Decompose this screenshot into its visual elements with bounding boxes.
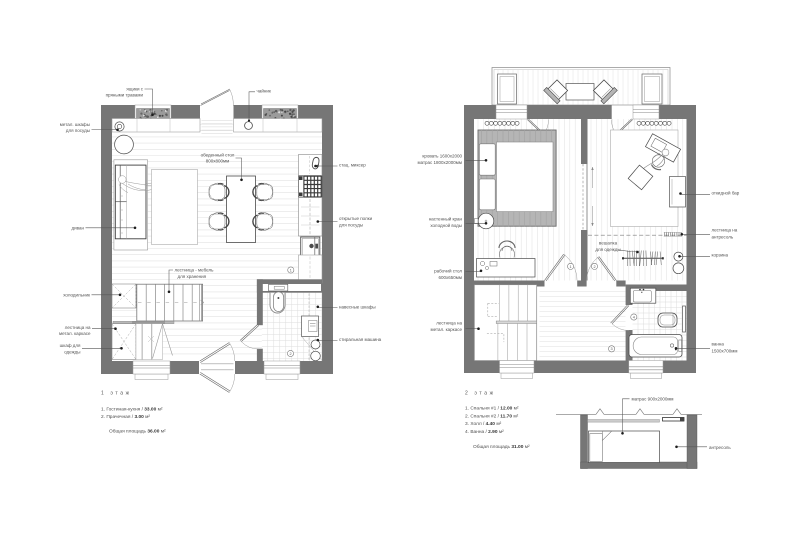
svg-text:1. Спальня #1 / 12.00 м²: 1. Спальня #1 / 12.00 м² — [465, 406, 519, 412]
svg-text:2: 2 — [289, 352, 291, 356]
svg-text:1 этаж: 1 этаж — [101, 390, 132, 396]
svg-text:метал. каркасе: метал. каркасе — [431, 327, 463, 332]
svg-text:пряными травами: пряными травами — [106, 93, 144, 98]
svg-text:лестница на: лестница на — [65, 325, 91, 330]
svg-text:800х800мм: 800х800мм — [206, 159, 229, 164]
svg-text:откидной бар: откидной бар — [712, 190, 740, 196]
svg-text:шкаф для: шкаф для — [60, 343, 81, 348]
svg-text:лестница на: лестница на — [436, 321, 462, 326]
svg-text:кровать 1600х2000: кровать 1600х2000 — [422, 154, 462, 159]
svg-text:2. Спальня #2 / 11.70 м²: 2. Спальня #2 / 11.70 м² — [465, 413, 519, 419]
svg-text:3. Холл / 4.40 м²: 3. Холл / 4.40 м² — [465, 421, 502, 427]
svg-text:4. Ванна / 2.90 м²: 4. Ванна / 2.90 м² — [465, 429, 504, 435]
svg-text:ванна: ванна — [712, 342, 725, 347]
svg-text:для хранения: для хранения — [178, 274, 207, 279]
svg-text:ящики с: ящики с — [126, 87, 143, 92]
svg-text:2: 2 — [593, 265, 595, 269]
svg-text:антресоль: антресоль — [712, 235, 734, 240]
svg-text:лестница - мебель: лестница - мебель — [175, 268, 215, 273]
svg-text:3: 3 — [611, 347, 613, 351]
svg-text:стац. миксер: стац. миксер — [339, 162, 366, 167]
svg-text:одежды: одежды — [64, 350, 80, 355]
svg-text:матрас 1800х2000мм: матрас 1800х2000мм — [417, 160, 462, 165]
svg-text:1500х700мм: 1500х700мм — [712, 349, 738, 354]
svg-text:2 этаж: 2 этаж — [465, 390, 496, 396]
svg-text:открытые полки: открытые полки — [339, 216, 373, 221]
svg-text:для одежды: для одежды — [595, 247, 620, 252]
svg-text:настенный кран: настенный кран — [429, 216, 463, 222]
svg-text:2. Прачечная / 3.00 м²: 2. Прачечная / 3.00 м² — [101, 414, 150, 420]
svg-text:диван: диван — [72, 226, 85, 231]
svg-text:обеденный стол: обеденный стол — [201, 152, 235, 158]
svg-text:1: 1 — [290, 268, 292, 272]
svg-text:чайник: чайник — [257, 87, 271, 93]
svg-text:600х650мм: 600х650мм — [439, 275, 462, 280]
svg-text:стиральная машина: стиральная машина — [339, 337, 382, 342]
svg-text:Общая площадь 36.00 м²: Общая площадь 36.00 м² — [109, 429, 166, 435]
svg-text:1. Гостиная-кухня / 33.00 м²: 1. Гостиная-кухня / 33.00 м² — [101, 407, 163, 413]
svg-text:навесные шкафы: навесные шкафы — [339, 305, 376, 310]
svg-text:метал. каркасе: метал. каркасе — [59, 331, 91, 336]
svg-text:антресоль: антресоль — [709, 445, 731, 450]
svg-text:для посуды: для посуды — [339, 222, 363, 227]
svg-text:холодной воды: холодной воды — [430, 222, 462, 228]
svg-text:Общая площадь 31.00 м²: Общая площадь 31.00 м² — [473, 444, 530, 450]
svg-text:корзина: корзина — [712, 253, 729, 258]
svg-text:1: 1 — [570, 265, 572, 269]
svg-text:метал. шкафы: метал. шкафы — [60, 122, 90, 127]
svg-text:рабочий стол: рабочий стол — [434, 268, 462, 274]
svg-text:4: 4 — [633, 315, 635, 319]
svg-text:матрас 900х2000мм: матрас 900х2000мм — [632, 397, 674, 402]
svg-text:холодильник: холодильник — [63, 293, 90, 298]
svg-text:лестница на: лестница на — [712, 228, 738, 233]
svg-text:вешалка: вешалка — [599, 241, 618, 246]
svg-text:для посуды: для посуды — [66, 128, 90, 133]
